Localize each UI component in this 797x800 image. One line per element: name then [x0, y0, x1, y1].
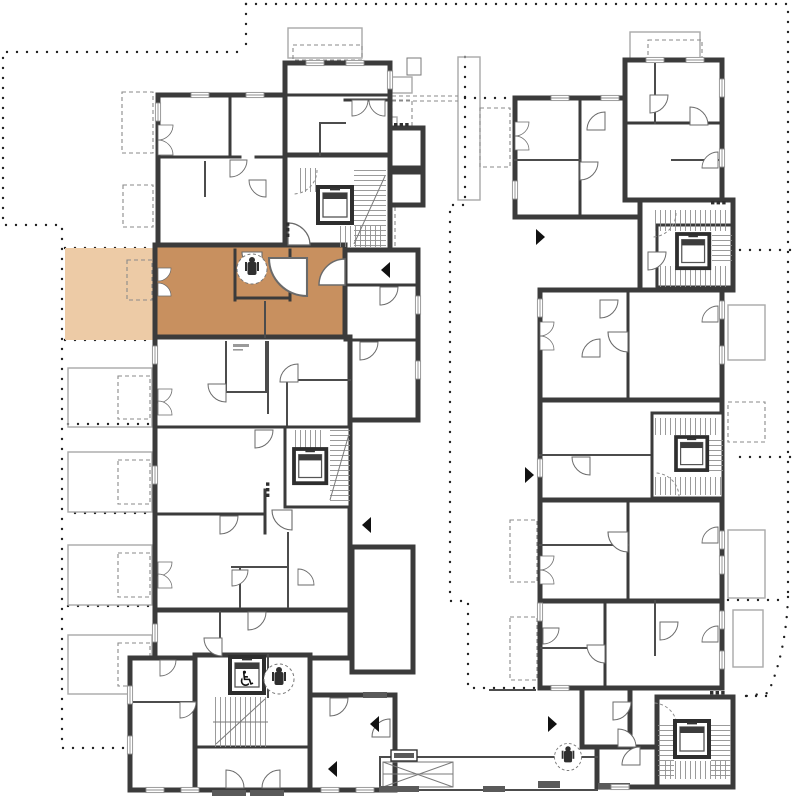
- fixture-icon: [555, 744, 582, 771]
- wheelchair-icon: ♿: [238, 667, 257, 691]
- elevator-mid-left: [294, 449, 326, 483]
- elevator-top-left: [318, 187, 352, 223]
- elevator-mid-right: [676, 437, 707, 470]
- fixture-icon: [237, 254, 267, 284]
- entrance-arrow-icon: [548, 716, 557, 732]
- stair-core-bottom-left: [213, 697, 268, 747]
- selected-unit-terrace[interactable]: [65, 248, 155, 340]
- elevator-top-right: [677, 234, 709, 268]
- right-building: [515, 60, 733, 787]
- elevator-bottom-right: [675, 721, 709, 757]
- fixture-icon: [264, 664, 294, 694]
- entrance-arrow-icon: [362, 517, 371, 533]
- entrance-arrow-icon: [525, 467, 534, 483]
- entrance-arrow-icon: [536, 229, 545, 245]
- floor-plan-canvas: ♿: [0, 0, 797, 800]
- floor-plan-page: ♿: [0, 0, 797, 800]
